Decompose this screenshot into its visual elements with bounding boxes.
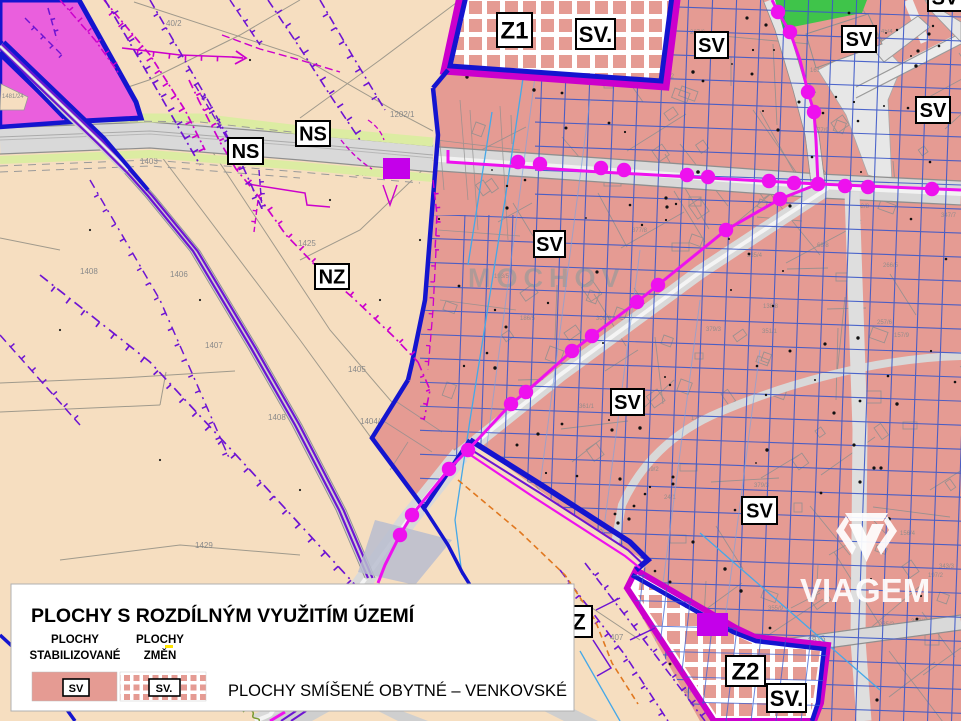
svg-text:156/4: 156/4 (900, 531, 916, 537)
svg-text:ZMĚN: ZMĚN (144, 649, 177, 662)
svg-text:VIAGEM: VIAGEM (800, 572, 930, 609)
svg-text:1481/24: 1481/24 (2, 94, 24, 100)
svg-text:SV.: SV. (156, 683, 173, 695)
svg-text:SV: SV (614, 392, 641, 414)
svg-text:Z2: Z2 (731, 659, 759, 686)
svg-text:407: 407 (610, 633, 624, 642)
svg-text:1407: 1407 (205, 341, 223, 350)
svg-text:351/1: 351/1 (762, 329, 778, 335)
svg-text:157/9: 157/9 (894, 333, 910, 339)
svg-text:1408: 1408 (80, 267, 98, 276)
svg-text:PLOCHY: PLOCHY (136, 634, 184, 646)
svg-text:SV: SV (698, 35, 725, 57)
svg-text:68/8: 68/8 (817, 243, 829, 249)
svg-text:266/5: 266/5 (883, 263, 899, 269)
svg-text:40/2: 40/2 (166, 19, 182, 28)
svg-text:257/6: 257/6 (877, 320, 893, 326)
svg-text:1406: 1406 (170, 270, 188, 279)
svg-text:NS: NS (232, 141, 260, 163)
svg-text:NS: NS (299, 124, 327, 146)
svg-text:SV: SV (920, 100, 947, 122)
svg-text:PLOCHY: PLOCHY (51, 634, 99, 646)
svg-text:NZ: NZ (319, 267, 346, 289)
svg-text:SV: SV (746, 501, 773, 523)
svg-text:SV: SV (846, 29, 873, 51)
svg-text:SV: SV (536, 234, 563, 256)
svg-text:377/8: 377/8 (632, 228, 648, 234)
svg-text:379/3: 379/3 (706, 327, 722, 333)
svg-text:138/8: 138/8 (763, 304, 779, 310)
svg-text:SV: SV (932, 0, 959, 10)
svg-text:Z1: Z1 (500, 18, 528, 45)
svg-text:SV.: SV. (579, 22, 612, 47)
svg-text:PLOCHY S ROZDÍLNÝM VYUŽITÍM ÚZ: PLOCHY S ROZDÍLNÝM VYUŽITÍM ÚZEMÍ (31, 603, 415, 627)
svg-text:361/1: 361/1 (579, 404, 595, 410)
svg-text:1202/1: 1202/1 (390, 110, 415, 119)
svg-text:197/2: 197/2 (928, 573, 944, 579)
svg-text:1425: 1425 (298, 239, 316, 248)
svg-text:SV: SV (69, 683, 84, 695)
svg-text:STABILIZOVANÉ: STABILIZOVANÉ (30, 649, 121, 662)
svg-text:1429: 1429 (195, 541, 213, 550)
svg-text:1405: 1405 (348, 365, 366, 374)
svg-text:347/7: 347/7 (941, 213, 957, 219)
svg-text:PLOCHY SMÍŠENÉ OBYTNÉ – VENKOV: PLOCHY SMÍŠENÉ OBYTNÉ – VENKOVSKÉ (228, 681, 567, 700)
svg-text:1408: 1408 (268, 413, 286, 422)
svg-text:SV.: SV. (770, 686, 803, 711)
